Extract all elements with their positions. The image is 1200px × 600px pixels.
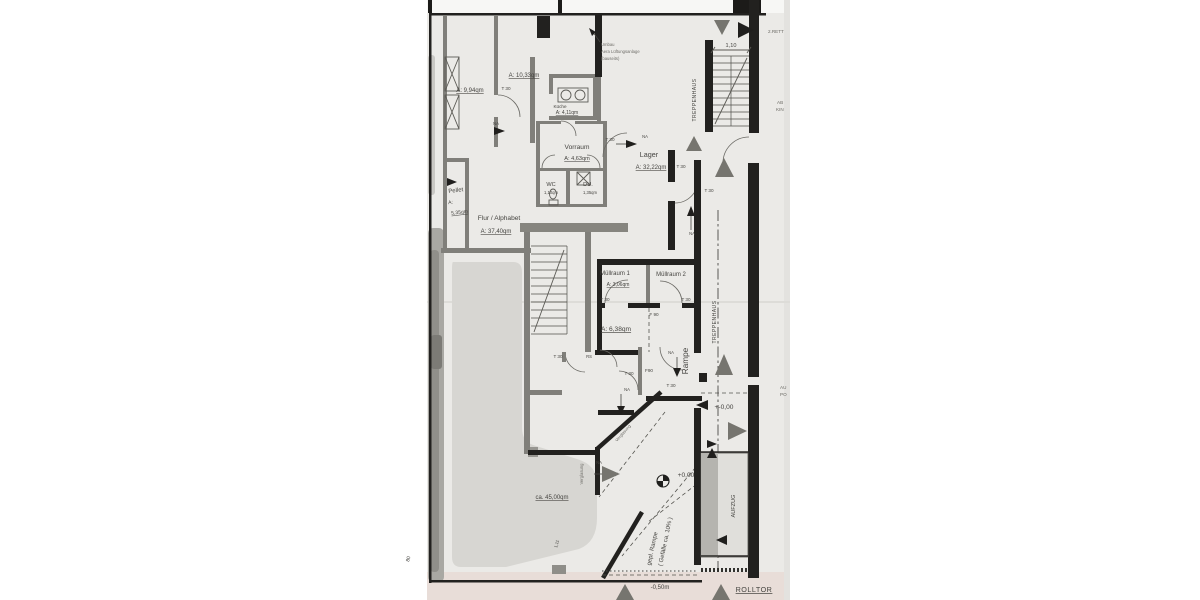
aufzug-shaft xyxy=(701,452,748,570)
na-label: NA xyxy=(624,387,630,392)
door-label-t30: T 30 xyxy=(676,164,686,169)
edge-fragment: AU xyxy=(780,385,786,390)
edge-fragment: KIN xyxy=(776,107,784,112)
room-name-label: Müllraum 2 xyxy=(656,272,686,278)
level-label: -0,50m xyxy=(651,585,670,591)
room-area-label: A: 9,94qm xyxy=(456,88,483,94)
door-label-t30: T 30 xyxy=(681,297,691,302)
na-label: NA xyxy=(642,134,648,139)
room-area-label: A: 4,63qm xyxy=(564,156,590,162)
vent-annotation: Aera Lüftungsanlage xyxy=(601,49,640,54)
room-name-label: Lager xyxy=(640,150,659,159)
na-label: NA xyxy=(596,460,602,465)
door-label-f90: F90 xyxy=(645,368,653,373)
level-label: +0,00 xyxy=(678,472,695,479)
dimension-label: 80 xyxy=(405,555,412,562)
door-label-t30: T 30 xyxy=(605,137,615,142)
door-label-rs: RS xyxy=(586,354,592,359)
room-area-label: A: 37,40qm xyxy=(481,229,512,235)
door-label-t30: T 30 xyxy=(553,354,563,359)
edge-fragment: AB xyxy=(777,100,783,105)
room-name-label: Küche xyxy=(553,104,566,109)
vent-annotation: (bauseits) xyxy=(601,56,620,61)
door-label-f90: F 90 xyxy=(649,312,659,317)
room-area-label: A: 4,11qm xyxy=(556,110,578,116)
room-name-label: Vorraum xyxy=(565,144,590,151)
door-label-t30: T 30 xyxy=(501,86,511,91)
rampe-label: Rampe xyxy=(681,347,690,374)
na-label: NA xyxy=(493,121,499,126)
aufzug-label: AUFZUG xyxy=(731,495,737,518)
rolltor-label: ROLLTOR xyxy=(736,585,773,594)
na-label: NA xyxy=(668,350,674,355)
vent-annotation: Umbau xyxy=(601,42,615,47)
floorplan-scan-page: A: 9,94qm A: 10,33qm Küche A: 4,11qm Vor… xyxy=(0,0,1200,600)
level-label: +-0,00 xyxy=(715,404,734,411)
door-label-t30: T 30 xyxy=(624,371,634,376)
room-area-prefix: A: xyxy=(448,200,453,207)
door-label-t30: T 30 xyxy=(704,188,714,193)
room-area-label: 1,10qm xyxy=(544,190,558,195)
door-label-t30: T 30 xyxy=(600,297,610,302)
na-label: NA xyxy=(689,231,695,236)
smudge-spot xyxy=(552,565,566,574)
room-area-label: A: 10,33qm xyxy=(509,73,540,79)
verglasung-label: Verglasung xyxy=(579,463,584,485)
treppenhaus-label: TREPPENHAUS xyxy=(712,300,718,343)
door-label-t30: T 30 xyxy=(666,383,676,388)
room-area-label: A: 32,22qm xyxy=(636,165,667,171)
dimension-label: 1,10 xyxy=(726,43,737,49)
room-area-label: ca. 45,00qm xyxy=(535,495,568,501)
room-area-label: 1,35qm xyxy=(583,190,597,195)
treppenhaus-label: TREPPENHAUS xyxy=(692,78,698,121)
room-area-label: A: 6,38qm xyxy=(601,326,632,333)
room-name-label: DU. xyxy=(583,182,593,188)
room-name-label: Müllraum 1 xyxy=(600,271,630,277)
edge-fragment: PO xyxy=(780,392,787,397)
floorplan-svg: A: 9,94qm A: 10,33qm Küche A: 4,11qm Vor… xyxy=(0,0,1200,600)
room-name-label: Flur / Alphabet xyxy=(478,215,521,222)
room-name-label: WC xyxy=(546,182,555,188)
room-area-label: A: 3,06qm xyxy=(607,282,630,288)
level-marker xyxy=(657,475,669,487)
edge-fragment: 2.RETT xyxy=(768,29,784,34)
